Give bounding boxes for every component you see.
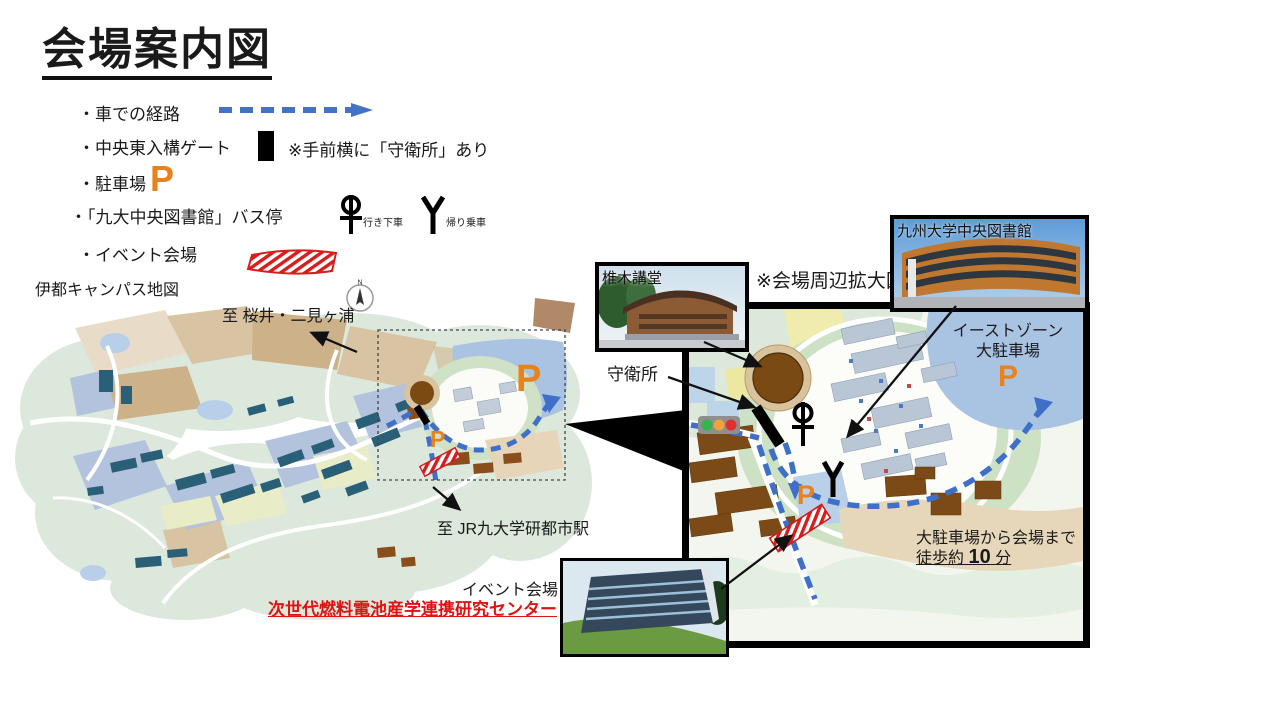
shiiki-hall-building <box>410 381 434 405</box>
shiiki-hall-photo-label: 椎木講堂 <box>602 267 662 288</box>
car-route-arrow-icon <box>215 101 377 119</box>
legend-gate-label: ・中央東入構ゲート <box>78 134 231 159</box>
venue-building-photo-image <box>563 561 726 654</box>
east-parking-p-left: P <box>516 360 541 398</box>
east-zone-line1: イーストゾーン <box>943 322 1073 342</box>
to-station-label: 至 JR九大学研都市駅 <box>437 515 589 539</box>
venue-parking-p-left: P <box>430 428 445 451</box>
central-library-photo-label: 九州大学中央図書館 <box>897 220 1032 241</box>
walk-info-line2: 徒歩約 10 分 <box>916 544 1011 569</box>
legend-parking-label: ・駐車場 <box>78 170 146 195</box>
legend-car-route-label: ・車での経路 <box>78 100 180 125</box>
venue-building-photo <box>560 558 729 657</box>
bus-stop-return-icon <box>420 195 446 235</box>
bus-outbound-label: 行き下車 <box>363 214 403 229</box>
traffic-light-icon <box>698 416 740 434</box>
legend-bus-stop-label: ・「九大中央図書館」バス停 <box>70 203 283 228</box>
east-zone-line2: 大駐車場 <box>943 342 1073 362</box>
walk-minutes: 10 <box>968 546 990 568</box>
enlarged-map-caption: ※会場周辺拡大図 <box>756 266 905 293</box>
shiiki-hall-photo: 椎木講堂 <box>595 262 749 352</box>
walk-suffix: 分 <box>995 550 1011 567</box>
guard-house-label: 守衛所 <box>607 360 658 385</box>
to-sakurai-label: 至 桜井・二見ヶ浦 <box>222 302 354 326</box>
parking-icon: P <box>150 161 174 197</box>
page-title: 会場案内図 <box>42 26 272 80</box>
campus-map-caption: 伊都キャンパス地図 <box>35 276 179 300</box>
central-library-photo: 九州大学中央図書館 <box>890 215 1089 312</box>
gate-icon <box>258 131 274 161</box>
venue-guide-slide: 会場案内図 ・車での経路 ・中央東入構ゲート ※手前横に「守衛所」あり ・駐車場… <box>0 0 1280 720</box>
compass-north-label: N <box>357 280 362 287</box>
legend-gate-note: ※手前横に「守衛所」あり <box>288 136 489 161</box>
bus-return-label: 帰り乗車 <box>446 214 486 229</box>
east-zone-parking-label: イーストゾーン 大駐車場 P <box>943 322 1073 392</box>
bus-stop-outbound-icon <box>338 193 364 235</box>
shiiki-building-marker <box>753 353 803 403</box>
east-zone-p: P <box>943 362 1073 392</box>
venue-parking-p-right: P <box>797 482 815 509</box>
walk-prefix: 徒歩約 <box>916 550 964 567</box>
venue-name-label: 次世代燃料電池産学連携研究センター <box>268 595 557 620</box>
